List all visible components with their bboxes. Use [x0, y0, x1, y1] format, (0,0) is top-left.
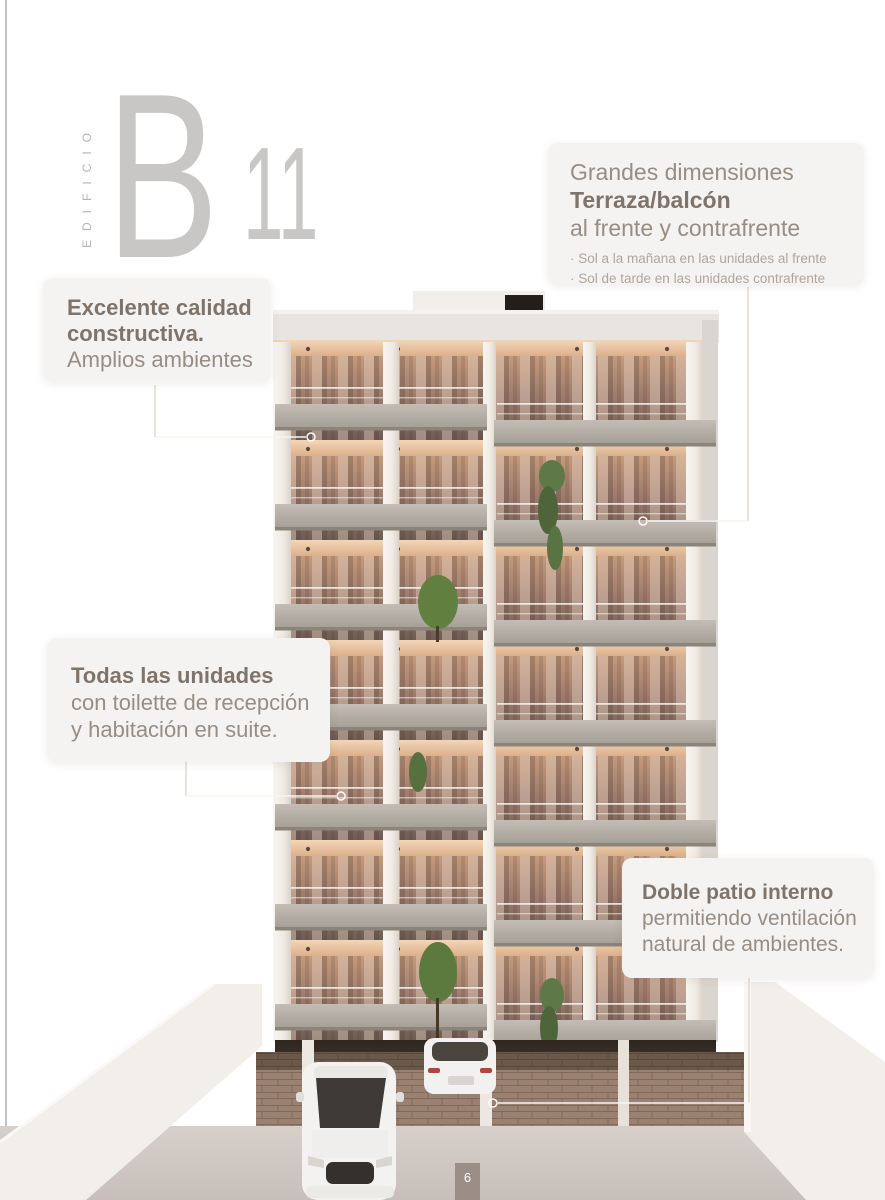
logo-vertical-label: EDIFICIO [80, 96, 94, 248]
callout-patio: Doble patio interno permitiendo ventilac… [622, 858, 874, 978]
quality-line3: Amplios ambientes [67, 347, 271, 373]
building-roof [273, 291, 719, 343]
callout-units: Todas las unidades con toilette de recep… [47, 638, 330, 762]
dimensions-bullet-2: · Sol de tarde en las unidades contrafre… [570, 269, 864, 289]
units-line3: y habitación en suite. [71, 716, 330, 743]
dimensions-line1: Grandes dimensiones [570, 158, 864, 186]
car-rear [424, 1038, 496, 1094]
logo-letter: B [106, 58, 219, 293]
dimensions-line3: al frente y contrafrente [570, 214, 864, 242]
units-bold: Todas las unidades [71, 662, 330, 689]
dimensions-line2: Terraza/balcón [570, 186, 864, 214]
dimensions-bullet-1: · Sol a la mañana en las unidades al fre… [570, 249, 864, 269]
callout-dimensions: Grandes dimensiones Terraza/balcón al fr… [548, 143, 864, 285]
patio-line3: natural de ambientes. [642, 932, 874, 958]
page-number: 6 [455, 1163, 480, 1200]
car-front [296, 1062, 404, 1200]
quality-bold1: Excelente calidad [67, 295, 271, 321]
callout-quality: Excelente calidad constructiva. Amplios … [43, 278, 271, 382]
quality-bold2: constructiva. [67, 321, 271, 347]
patio-line2: permitiendo ventilación [642, 906, 874, 932]
brochure-page: EDIFICIO B 11 [0, 0, 885, 1200]
dimensions-bullets: · Sol a la mañana en las unidades al fre… [570, 249, 864, 289]
units-line2: con toilette de recepción [71, 689, 330, 716]
patio-bold: Doble patio interno [642, 880, 874, 906]
logo-number: 11 [243, 128, 318, 260]
